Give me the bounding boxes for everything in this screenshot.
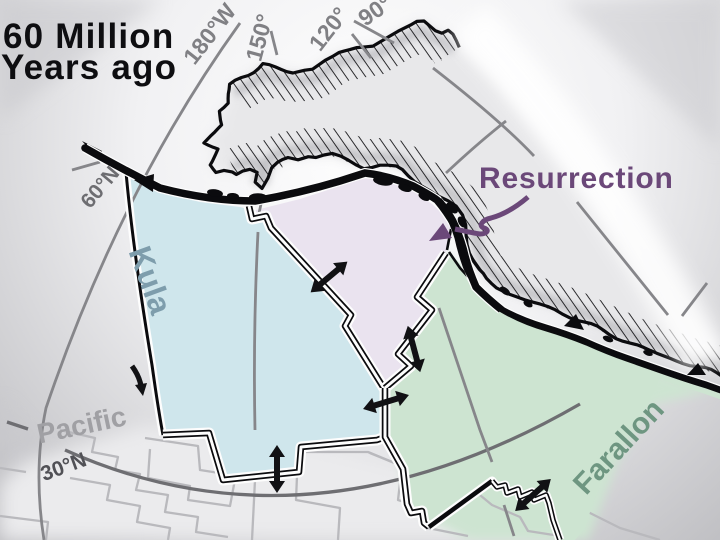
svg-text:Resurrection: Resurrection [479,162,674,195]
svg-text:Years ago: Years ago [1,48,177,87]
